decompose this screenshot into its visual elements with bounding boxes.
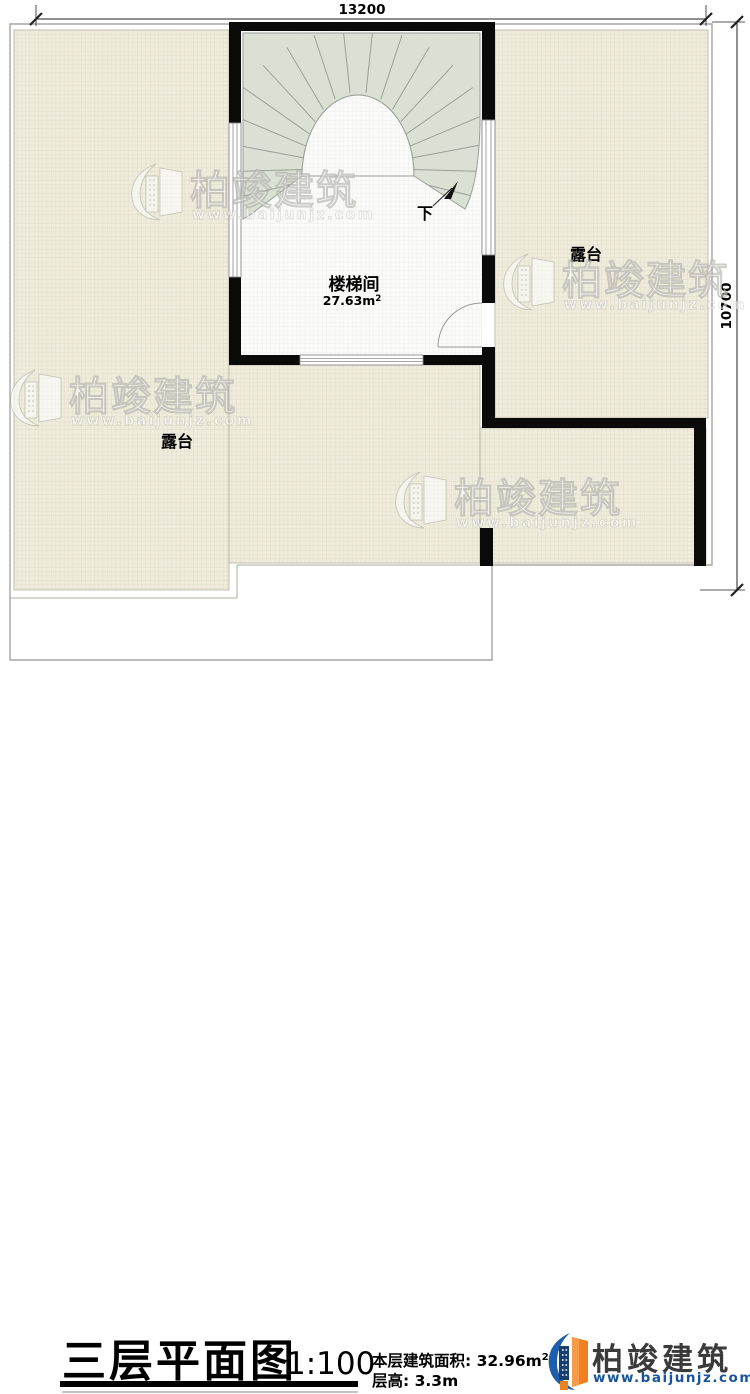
- floor-height-label: 层高:: [372, 1372, 409, 1390]
- wall-left-lower: [229, 277, 241, 365]
- wall-stub: [480, 528, 493, 566]
- watermark: 柏竣建筑 www.baijunjz.com: [11, 370, 254, 429]
- stairwell-label: 楼梯间: [329, 274, 380, 295]
- wall-stairwell-top: [229, 22, 495, 31]
- watermark: 柏竣建筑 www.baijunjz.com: [396, 472, 639, 531]
- terrace-right-area: [495, 30, 708, 418]
- wall-left-upper: [229, 22, 241, 123]
- stairwell-area: 27.63m2: [323, 293, 382, 308]
- dim-width-value: 13200: [339, 2, 386, 18]
- floor-area-row: 本层建筑面积: 32.96m2: [372, 1348, 549, 1371]
- floor-area-label: 本层建筑面积:: [372, 1352, 471, 1370]
- watermark: 柏竣建筑 www.baijunjz.com: [504, 254, 747, 313]
- wall-right-edge: [694, 428, 706, 566]
- window-right: [482, 120, 495, 255]
- watermark-url: www.baijunjz.com: [71, 413, 254, 429]
- drawing-scale: 1:100: [286, 1346, 375, 1382]
- stair-direction-label: 下: [417, 204, 433, 223]
- wall-right-upper: [482, 22, 495, 120]
- page-title: 三层平面图: [62, 1325, 297, 1389]
- watermark: 柏竣建筑 www.baijunjz.com: [132, 164, 375, 223]
- window-bottom: [300, 355, 423, 365]
- wall-bottom-right-seg: [423, 355, 495, 365]
- wall-right-mid: [482, 255, 495, 303]
- terrace-below-stair-area: [229, 365, 480, 563]
- drawing-info: 本层建筑面积: 32.96m2 层高: 3.3m: [372, 1348, 549, 1391]
- wall-bottom-left-seg: [229, 355, 300, 365]
- terrace-left-label: 露台: [161, 432, 193, 451]
- company-logo: 柏竣建筑 www.baijunjz.com: [546, 1330, 746, 1394]
- watermark-url: www.baijunjz.com: [564, 297, 747, 313]
- floor-plan-drawing: 下 楼梯间 27.63m2 露台 露台 13200 10700 柏竣建筑 www…: [0, 0, 750, 662]
- title-underline-thin: [62, 1391, 358, 1393]
- watermark-url: www.baijunjz.com: [456, 515, 639, 531]
- company-logo-icon: [546, 1332, 590, 1392]
- floor-height-value: 3.3m: [415, 1372, 459, 1390]
- terrace-left-area: [14, 30, 229, 590]
- title-block: 三层平面图 1:100 本层建筑面积: 32.96m2 层高: 3.3m 柏竣建…: [0, 662, 750, 740]
- watermark-url: www.baijunjz.com: [192, 207, 375, 223]
- floor-area-value: 32.96m: [477, 1352, 542, 1370]
- floor-height-row: 层高: 3.3m: [372, 1371, 549, 1391]
- wall-terrace-divider: [482, 418, 706, 428]
- company-url: www.baijunjz.com: [593, 1370, 750, 1386]
